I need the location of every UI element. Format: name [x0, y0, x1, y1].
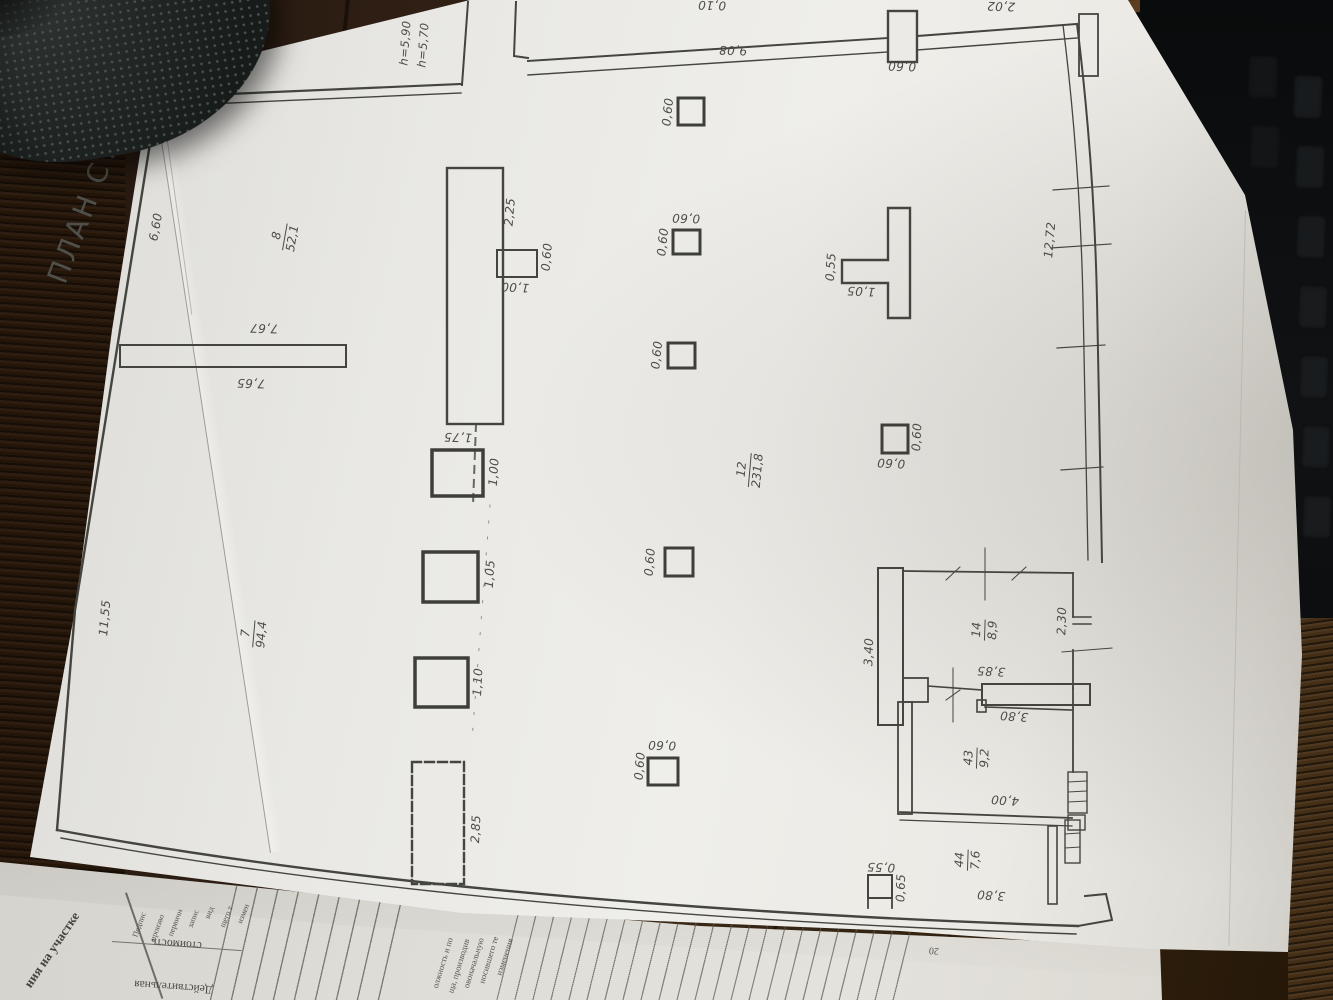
floor-plan-drawing: [0, 0, 1333, 1000]
dim-label: 2,30: [1055, 607, 1069, 636]
height-label: h=5,70: [415, 22, 430, 68]
dim-label: 7,65: [237, 376, 266, 390]
dim-label: 3,40: [862, 638, 876, 667]
dim-label: 0,60: [539, 242, 554, 271]
dim-label: 3,80: [976, 888, 1005, 903]
dim-label: 12,72: [1042, 221, 1058, 258]
dim-label: 3,85: [977, 664, 1006, 678]
room-label: 44 7,6: [953, 849, 983, 871]
dim-label: 11,55: [97, 599, 113, 636]
dim-label: 0,60: [910, 423, 924, 452]
dim-label: 0,60: [877, 456, 906, 470]
room-label: 12 231,8: [734, 452, 766, 489]
room-area: 94,4: [253, 621, 269, 649]
dim-label: 0,60: [632, 751, 647, 780]
dim-label: 1,00: [487, 457, 502, 486]
dim-label: 7,67: [250, 321, 279, 335]
room-walls: [868, 548, 1112, 908]
dim-label: 0,60: [888, 59, 917, 73]
dim-label: 1,05: [483, 559, 498, 588]
room-area: 231,8: [749, 453, 766, 488]
dim-label: 0,60: [642, 547, 657, 576]
partition-walls: [120, 168, 910, 884]
dim-label: 2,25: [502, 197, 517, 226]
dim-label: 0,60: [655, 227, 670, 256]
dim-label: 3,80: [999, 709, 1028, 724]
dim-label: 1,10: [471, 668, 485, 697]
dim-label: 0,60: [672, 211, 701, 225]
room-label: 43 9,2: [962, 747, 992, 769]
room-number: 43: [962, 747, 978, 769]
dim-label: 1,75: [444, 430, 473, 444]
dim-label: 0,65: [894, 874, 908, 903]
dim-label: 0,55: [824, 252, 839, 281]
dim-label: 1,00: [501, 280, 530, 294]
dim-label: 0,60: [648, 738, 677, 752]
dim-label: 2,85: [469, 815, 483, 844]
room-number: 44: [953, 849, 969, 871]
room-area: 7,6: [968, 849, 983, 871]
dim-label-partial: 0,10: [698, 0, 727, 12]
dim-label: 0,60: [660, 97, 675, 126]
dim-label: 4,00: [990, 793, 1019, 808]
height-label: h=5,90: [397, 20, 412, 66]
outer-walls: [57, 2, 1112, 934]
room-area: 8,9: [985, 619, 1000, 641]
room-number: 14: [970, 619, 986, 641]
room-label: 7 94,4: [238, 619, 270, 648]
dim-label: 0,55: [867, 860, 896, 874]
room-label: 8 52,1: [268, 221, 302, 252]
room-label: 14 8,9: [970, 619, 1000, 641]
dim-label: 1,05: [847, 284, 876, 298]
columns: [415, 98, 908, 785]
dim-label: 9,08: [719, 43, 748, 57]
room-area: 9,2: [977, 747, 992, 769]
dim-label: 0,60: [649, 340, 664, 369]
desk-object-shadow: [0, 0, 92, 49]
photo-scene: ния на участке Действительная стоимость …: [0, 0, 1333, 1000]
dim-label-partial: 2,02: [987, 0, 1016, 13]
